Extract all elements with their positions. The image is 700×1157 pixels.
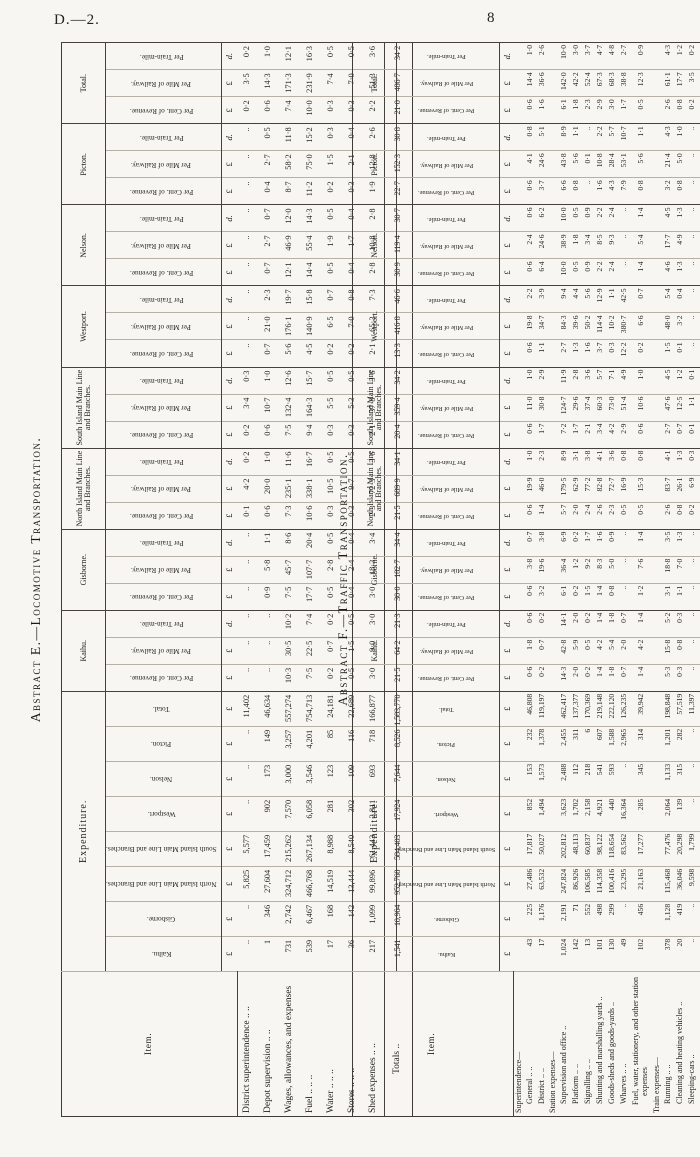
value-cell: 2,191 (558, 901, 570, 936)
ratio-subheader-label: Per Train-mile. (140, 538, 184, 547)
value-cell: 7·6 (630, 556, 652, 583)
unit-cell: d. (500, 610, 514, 637)
value-cell (548, 448, 558, 475)
ratio-subheader-label: Per Cent. of Revenue. (130, 511, 193, 520)
station-label: North Island Main Line and Branches. (106, 879, 217, 888)
item-label: Goods-sheds and goods-yards .. (606, 971, 618, 1116)
expenditure-station-header: Kaihu. (397, 936, 500, 971)
value-cell (548, 178, 558, 205)
value-cell: 5·7 (606, 124, 618, 151)
value-cell (548, 901, 558, 936)
value-cell: 0·8 (674, 637, 686, 664)
value-cell (652, 205, 662, 232)
value-cell: 1·1 (674, 583, 686, 610)
category-label: Superintendence— (514, 971, 524, 1116)
value-cell: 2·2 (524, 286, 536, 313)
value-cell: 42·5 (618, 286, 630, 313)
value-cell: 4·2 (594, 637, 606, 664)
value-cell: 36·6 (536, 70, 548, 97)
value-cell: .. (686, 936, 698, 971)
value-cell: 52·4 (582, 70, 594, 97)
station-label: Picton. (437, 740, 455, 748)
value-cell: 3·4 (237, 394, 258, 421)
value-cell: 2·3 (582, 97, 594, 124)
value-cell: 0·1 (237, 502, 258, 529)
value-cell: 4,921 (594, 796, 606, 831)
table-f-title: Abstract F.—Traffic Transportation. (337, 42, 352, 1117)
value-cell: 1·4 (630, 664, 652, 691)
value-cell: .. (237, 796, 258, 831)
item-label: District .. .. (536, 971, 548, 1116)
value-cell: 0·2 (630, 340, 652, 367)
value-cell: .. (686, 151, 698, 178)
unit-cell: £ (221, 232, 237, 259)
value-cell: 1·3 (570, 340, 582, 367)
value-cell: .. (237, 232, 258, 259)
value-cell: 1·4 (594, 610, 606, 637)
value-cell: 1,494 (536, 796, 548, 831)
value-cell: 0·5 (258, 124, 279, 151)
value-cell: 1,024 (558, 936, 570, 971)
value-cell: 10·0 (558, 259, 570, 286)
value-cell: 3·8 (582, 448, 594, 475)
value-cell (548, 124, 558, 151)
ratio-subheader: Per Mile of Railway. (397, 637, 500, 664)
value-cell (514, 367, 524, 394)
item-label: Cleaning and heating vehicles .. (674, 971, 686, 1116)
value-cell: 11,402 (237, 691, 258, 726)
value-cell: 1,128 (662, 901, 674, 936)
station-label: Westport. (148, 809, 176, 818)
value-cell: 3·2 (536, 583, 548, 610)
value-cell: 4·6 (662, 259, 674, 286)
ratio-subheader: Per Mile of Railway. (106, 313, 222, 340)
value-cell (548, 421, 558, 448)
value-cell (652, 664, 662, 691)
unit-cell: £ (500, 637, 514, 664)
unit-cell: £ (500, 340, 514, 367)
value-cell: 7·9 (618, 178, 630, 205)
ratio-subheader: Per Cent. of Revenue. (397, 178, 500, 205)
ratio-subheader-label: Per Mile of Railway. (420, 79, 473, 87)
value-cell: 1,799 (686, 831, 698, 866)
ratio-subheader: Per Cent. of Revenue. (397, 97, 500, 124)
value-cell: 14·1 (558, 610, 570, 637)
value-cell: 338·1 (300, 475, 321, 502)
unit-cell: £ (500, 936, 514, 971)
station-label: Nelson. (150, 774, 172, 783)
value-cell: 61·1 (662, 70, 674, 97)
value-cell: 45·7 (279, 556, 300, 583)
value-cell: 0·2 (237, 421, 258, 448)
value-cell: 5·9 (570, 637, 582, 664)
value-cell: 10·0 (558, 43, 570, 70)
ratio-subheader: Per Train-mile. (397, 124, 500, 151)
ratio-subheader-label: Per Mile of Railway. (131, 160, 191, 169)
value-cell: 0·2 (570, 529, 582, 556)
ratio-group-station-header: Total. (353, 43, 397, 124)
value-cell: 176·1 (279, 313, 300, 340)
value-cell: 12·9 (594, 286, 606, 313)
value-cell: 539 (300, 936, 321, 971)
value-cell: .. (618, 205, 630, 232)
unit-cell: d. (500, 124, 514, 151)
unit-cell: £ (500, 691, 514, 726)
value-cell: 2·9 (594, 97, 606, 124)
value-cell: 0·8 (618, 448, 630, 475)
value-cell: 14·3 (258, 70, 279, 97)
value-cell: 10·7 (618, 124, 630, 151)
station-label: North Island Main Line and Branches. (397, 880, 495, 888)
value-cell: 50·2 (582, 313, 594, 340)
value-cell: 46·0 (536, 475, 548, 502)
value-cell: 0·2 (237, 43, 258, 70)
value-cell: 1·3 (674, 529, 686, 556)
value-cell: 142 (570, 936, 582, 971)
value-cell: 26·1 (674, 475, 686, 502)
expenditure-station-header: Westport. (106, 796, 222, 831)
ratio-subheader-label: Per Cent. of Revenue. (418, 268, 474, 276)
unit-cell: £ (221, 70, 237, 97)
station-label: Kaihu. (152, 949, 171, 958)
value-cell: 3,623 (558, 796, 570, 831)
value-cell: 18·8 (662, 556, 674, 583)
value-cell: 84·3 (558, 313, 570, 340)
value-cell: 19·8 (524, 313, 536, 340)
value-cell (514, 637, 524, 664)
value-cell: 1·0 (630, 367, 652, 394)
value-cell: 1·2 (674, 43, 686, 70)
item-label: Platform .. .. (570, 971, 582, 1116)
value-cell: 0·8 (674, 97, 686, 124)
value-cell: 215,262 (279, 831, 300, 866)
value-cell (548, 936, 558, 971)
value-cell: .. (686, 232, 698, 259)
ratio-subheader: Per Train-mile. (106, 448, 222, 475)
value-cell: 0·9 (258, 583, 279, 610)
value-cell (652, 178, 662, 205)
value-cell: .. (686, 340, 698, 367)
value-cell: 2·6 (536, 43, 548, 70)
value-cell: 98,122 (594, 831, 606, 866)
unit-cell: d. (500, 367, 514, 394)
unit-cell: d. (221, 367, 237, 394)
value-cell: 9·4 (558, 286, 570, 313)
value-cell: 4,201 (300, 726, 321, 761)
value-cell: 3·1 (662, 583, 674, 610)
value-cell: 2,158 (582, 796, 594, 831)
value-cell: 299 (606, 901, 618, 936)
value-cell: 4·3 (606, 178, 618, 205)
unit-cell: £ (221, 901, 237, 936)
value-cell: 5,577 (237, 831, 258, 866)
value-cell: 0·6 (524, 97, 536, 124)
value-cell: 0·7 (258, 259, 279, 286)
value-cell: 4·5 (662, 367, 674, 394)
value-cell: 43·8 (558, 151, 570, 178)
value-cell (548, 151, 558, 178)
value-cell (514, 475, 524, 502)
unit-cell: £ (500, 97, 514, 124)
value-cell: 0·6 (258, 421, 279, 448)
value-cell: 0·9 (606, 529, 618, 556)
value-cell: 20 (674, 936, 686, 971)
value-cell (514, 178, 524, 205)
ratio-subheader-label: Per Cent. of Revenue. (130, 673, 193, 682)
value-cell: 10·0 (300, 97, 321, 124)
value-cell: 2·9 (618, 421, 630, 448)
value-cell: 4·1 (524, 151, 536, 178)
value-cell (548, 637, 558, 664)
table-abstract-f-traffic-transportation: Abstract F.—Traffic Transportation. Item… (337, 42, 677, 1117)
value-cell (548, 475, 558, 502)
unit-cell: d. (500, 448, 514, 475)
value-cell (514, 340, 524, 367)
value-cell (548, 232, 558, 259)
expenditure-station-header: North Island Main Line and Branches. (106, 866, 222, 901)
ratio-group-station-header: Picton. (62, 124, 106, 205)
value-cell: 46,634 (258, 691, 279, 726)
item-label: Fuel, water, stationery, and other stati… (630, 971, 652, 1116)
value-cell: 4·2 (606, 421, 618, 448)
value-cell: 6·1 (558, 583, 570, 610)
value-cell (548, 313, 558, 340)
ratio-subheader-label: Per Cent. of Revenue. (418, 511, 474, 519)
value-cell: 1·8 (570, 97, 582, 124)
value-cell: 1·3 (674, 205, 686, 232)
value-cell (548, 394, 558, 421)
value-cell: 8·9 (558, 448, 570, 475)
value-cell: 219,148 (594, 691, 606, 726)
value-cell: 43 (524, 936, 536, 971)
page-number: 8 (487, 10, 495, 27)
station-label: Total. (439, 705, 454, 713)
value-cell: 17·7 (662, 232, 674, 259)
value-cell: .. (618, 556, 630, 583)
unit-cell: £ (500, 313, 514, 340)
value-cell: 902 (258, 796, 279, 831)
value-cell (548, 796, 558, 831)
value-cell (652, 151, 662, 178)
value-cell: 1·4 (594, 664, 606, 691)
value-cell: 0·8 (630, 178, 652, 205)
ratio-subheader-label: Per Train-mile. (140, 214, 184, 223)
value-cell: 22·5 (300, 637, 321, 664)
value-cell: .. (258, 610, 279, 637)
item-column-header: Item. (62, 971, 238, 1116)
expenditure-station-header: Picton. (106, 726, 222, 761)
unit-cell: £ (500, 232, 514, 259)
value-cell: 2,064 (662, 796, 674, 831)
value-cell: 2·3 (258, 286, 279, 313)
unit-cell: £ (221, 583, 237, 610)
ratio-subheader: Per Cent. of Revenue. (106, 178, 222, 205)
value-cell: 15·3 (630, 475, 652, 502)
value-cell: 346 (258, 901, 279, 936)
value-cell: 19·9 (524, 475, 536, 502)
value-cell: .. (237, 205, 258, 232)
value-cell: .. (582, 124, 594, 151)
value-cell: 114,358 (594, 866, 606, 901)
value-cell: 6 (582, 726, 594, 761)
value-cell (548, 259, 558, 286)
value-cell: 15·8 (300, 286, 321, 313)
unit-cell: £ (221, 178, 237, 205)
expenditure-station-header: Nelson. (106, 761, 222, 796)
value-cell: 8·5 (594, 232, 606, 259)
page-reference: D.—2. (54, 12, 100, 29)
unit-cell: £ (221, 340, 237, 367)
unit-cell: £ (500, 556, 514, 583)
value-cell: 60,837 (582, 831, 594, 866)
value-cell: 0·2 (570, 583, 582, 610)
ratio-subheader: Per Mile of Railway. (106, 556, 222, 583)
value-cell: .. (686, 529, 698, 556)
value-cell: .. (237, 124, 258, 151)
value-cell: 21·0 (258, 313, 279, 340)
value-cell: 1 (258, 936, 279, 971)
value-cell (652, 124, 662, 151)
value-cell: 0·7 (524, 529, 536, 556)
value-cell: 132·4 (279, 394, 300, 421)
value-cell: 142·0 (558, 70, 570, 97)
value-cell: 1·0 (258, 367, 279, 394)
value-cell: 5·0 (606, 556, 618, 583)
ratio-subheader-label: Per Train-mile. (140, 52, 184, 61)
value-cell: 466,768 (300, 866, 321, 901)
value-cell: 6·1 (558, 97, 570, 124)
value-cell: 10·3 (279, 664, 300, 691)
value-cell: 16·7 (300, 448, 321, 475)
value-cell: 11,397 (686, 691, 698, 726)
value-cell: 593 (606, 761, 618, 796)
value-cell: 0·2 (582, 664, 594, 691)
value-cell: 5·7 (594, 367, 606, 394)
value-cell: 63,532 (536, 866, 548, 901)
value-cell: 0·8 (630, 448, 652, 475)
unit-cell: £ (500, 831, 514, 866)
unit-cell: d. (221, 529, 237, 556)
value-cell: 102 (630, 936, 652, 971)
value-cell: 3,546 (300, 761, 321, 796)
value-cell: 6·9 (558, 529, 570, 556)
ratio-subheader-label: Per Mile of Railway. (131, 79, 191, 88)
value-cell (652, 475, 662, 502)
value-cell: 3·8 (536, 529, 548, 556)
value-cell (514, 529, 524, 556)
value-cell: 5·3 (662, 664, 674, 691)
station-label: Total. (153, 704, 169, 713)
value-cell (514, 796, 524, 831)
value-cell: 16·3 (300, 43, 321, 70)
ratio-subheader: Per Mile of Railway. (397, 151, 500, 178)
value-cell (652, 286, 662, 313)
value-cell: 5·4 (662, 286, 674, 313)
value-cell: 3,257 (279, 726, 300, 761)
value-cell: 60·3 (594, 394, 606, 421)
value-cell: 118,654 (606, 831, 618, 866)
value-cell: 16·9 (618, 475, 630, 502)
value-cell: 0·6 (524, 583, 536, 610)
unit-cell: £ (221, 313, 237, 340)
value-cell: 75·0 (300, 151, 321, 178)
value-cell: 0·7 (618, 664, 630, 691)
value-cell: 17,459 (258, 831, 279, 866)
value-cell: 12·3 (630, 70, 652, 97)
value-cell: 1·8 (606, 664, 618, 691)
value-cell (652, 394, 662, 421)
value-cell: 72·7 (606, 475, 618, 502)
value-cell (652, 936, 662, 971)
ratio-subheader: Per Cent. of Revenue. (397, 583, 500, 610)
ratio-subheader-label: Per Train-mile. (427, 133, 466, 141)
ratio-subheader-label: Per Mile of Railway. (131, 403, 191, 412)
value-cell: 124·7 (558, 394, 570, 421)
value-cell: 86,926 (570, 866, 582, 901)
value-cell: 3·6 (582, 367, 594, 394)
unit-cell: £ (221, 866, 237, 901)
value-cell: 1·4 (630, 529, 652, 556)
value-cell: 0·5 (618, 502, 630, 529)
value-cell: 24·6 (536, 232, 548, 259)
value-cell: 0·6 (524, 421, 536, 448)
value-cell: 6·6 (630, 313, 652, 340)
value-cell: 83·7 (662, 475, 674, 502)
value-cell: 19·6 (536, 556, 548, 583)
ratio-subheader: Per Train-mile. (106, 43, 222, 70)
expenditure-station-header: Total. (106, 691, 222, 726)
value-cell: 15·7 (300, 367, 321, 394)
value-cell: 0·9 (582, 205, 594, 232)
value-cell: 20·4 (300, 529, 321, 556)
value-cell: 6·9 (686, 475, 698, 502)
value-cell (652, 232, 662, 259)
value-cell: 149 (258, 726, 279, 761)
value-cell: 1·7 (582, 529, 594, 556)
value-cell: 2·4 (606, 205, 618, 232)
value-cell: 2·9 (536, 367, 548, 394)
value-cell: 440 (606, 796, 618, 831)
value-cell: 7·3 (279, 502, 300, 529)
value-cell: 29·6 (570, 394, 582, 421)
value-cell: 12·0 (279, 205, 300, 232)
value-cell: 51·4 (618, 394, 630, 421)
value-cell: 55·4 (300, 232, 321, 259)
value-cell: 6,058 (300, 796, 321, 831)
value-cell: .. (686, 664, 698, 691)
unit-cell: £ (221, 691, 237, 726)
ratio-subheader-label: Per Cent. of Revenue. (418, 106, 474, 114)
value-cell (548, 340, 558, 367)
value-cell: 16,364 (618, 796, 630, 831)
value-cell (652, 691, 662, 726)
value-cell: 2·2 (594, 259, 606, 286)
ratio-subheader: Per Mile of Railway. (397, 70, 500, 97)
value-cell: 1·7 (618, 97, 630, 124)
value-cell: .. (686, 556, 698, 583)
value-cell: 2·4 (606, 259, 618, 286)
ratio-subheader: Per Mile of Railway. (106, 475, 222, 502)
value-cell: 1,702 (570, 796, 582, 831)
unit-cell: £ (500, 151, 514, 178)
ratio-subheader-label: Per Train-mile. (427, 52, 466, 60)
value-cell: 1·1 (686, 394, 698, 421)
value-cell: 3·7 (582, 43, 594, 70)
unit-cell: £ (221, 664, 237, 691)
value-cell: 0·7 (258, 205, 279, 232)
expenditure-station-header: Total. (397, 691, 500, 726)
expenditure-station-header: Gisborne. (106, 901, 222, 936)
